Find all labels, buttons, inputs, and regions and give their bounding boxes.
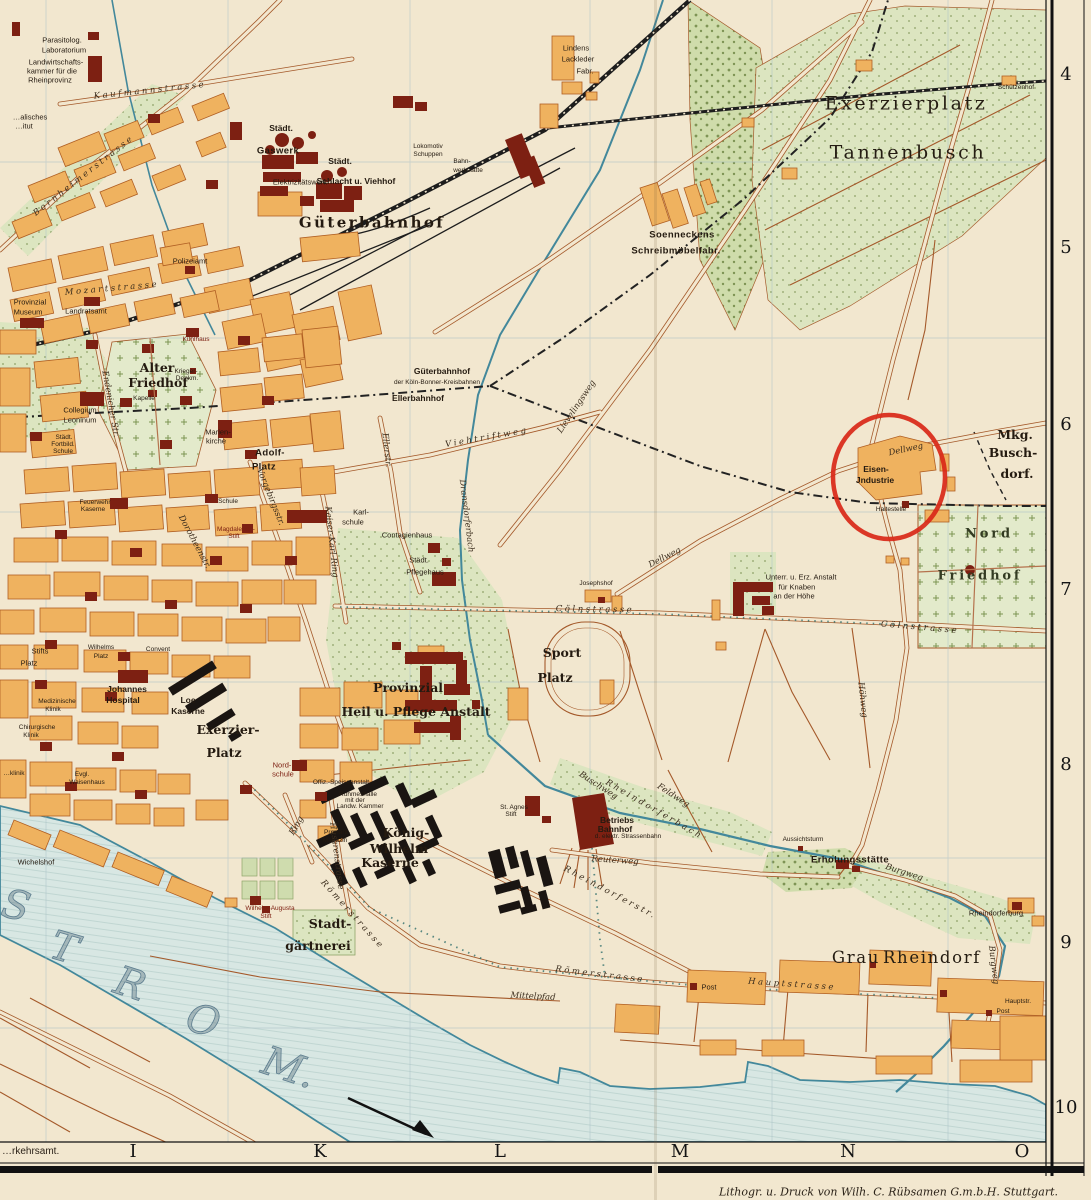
map-canvas	[0, 0, 1091, 1200]
map-page: …rkehrsamt. Lithogr. u. Druck von Wilh. …	[0, 0, 1091, 1200]
paper-fold	[654, 0, 657, 1200]
